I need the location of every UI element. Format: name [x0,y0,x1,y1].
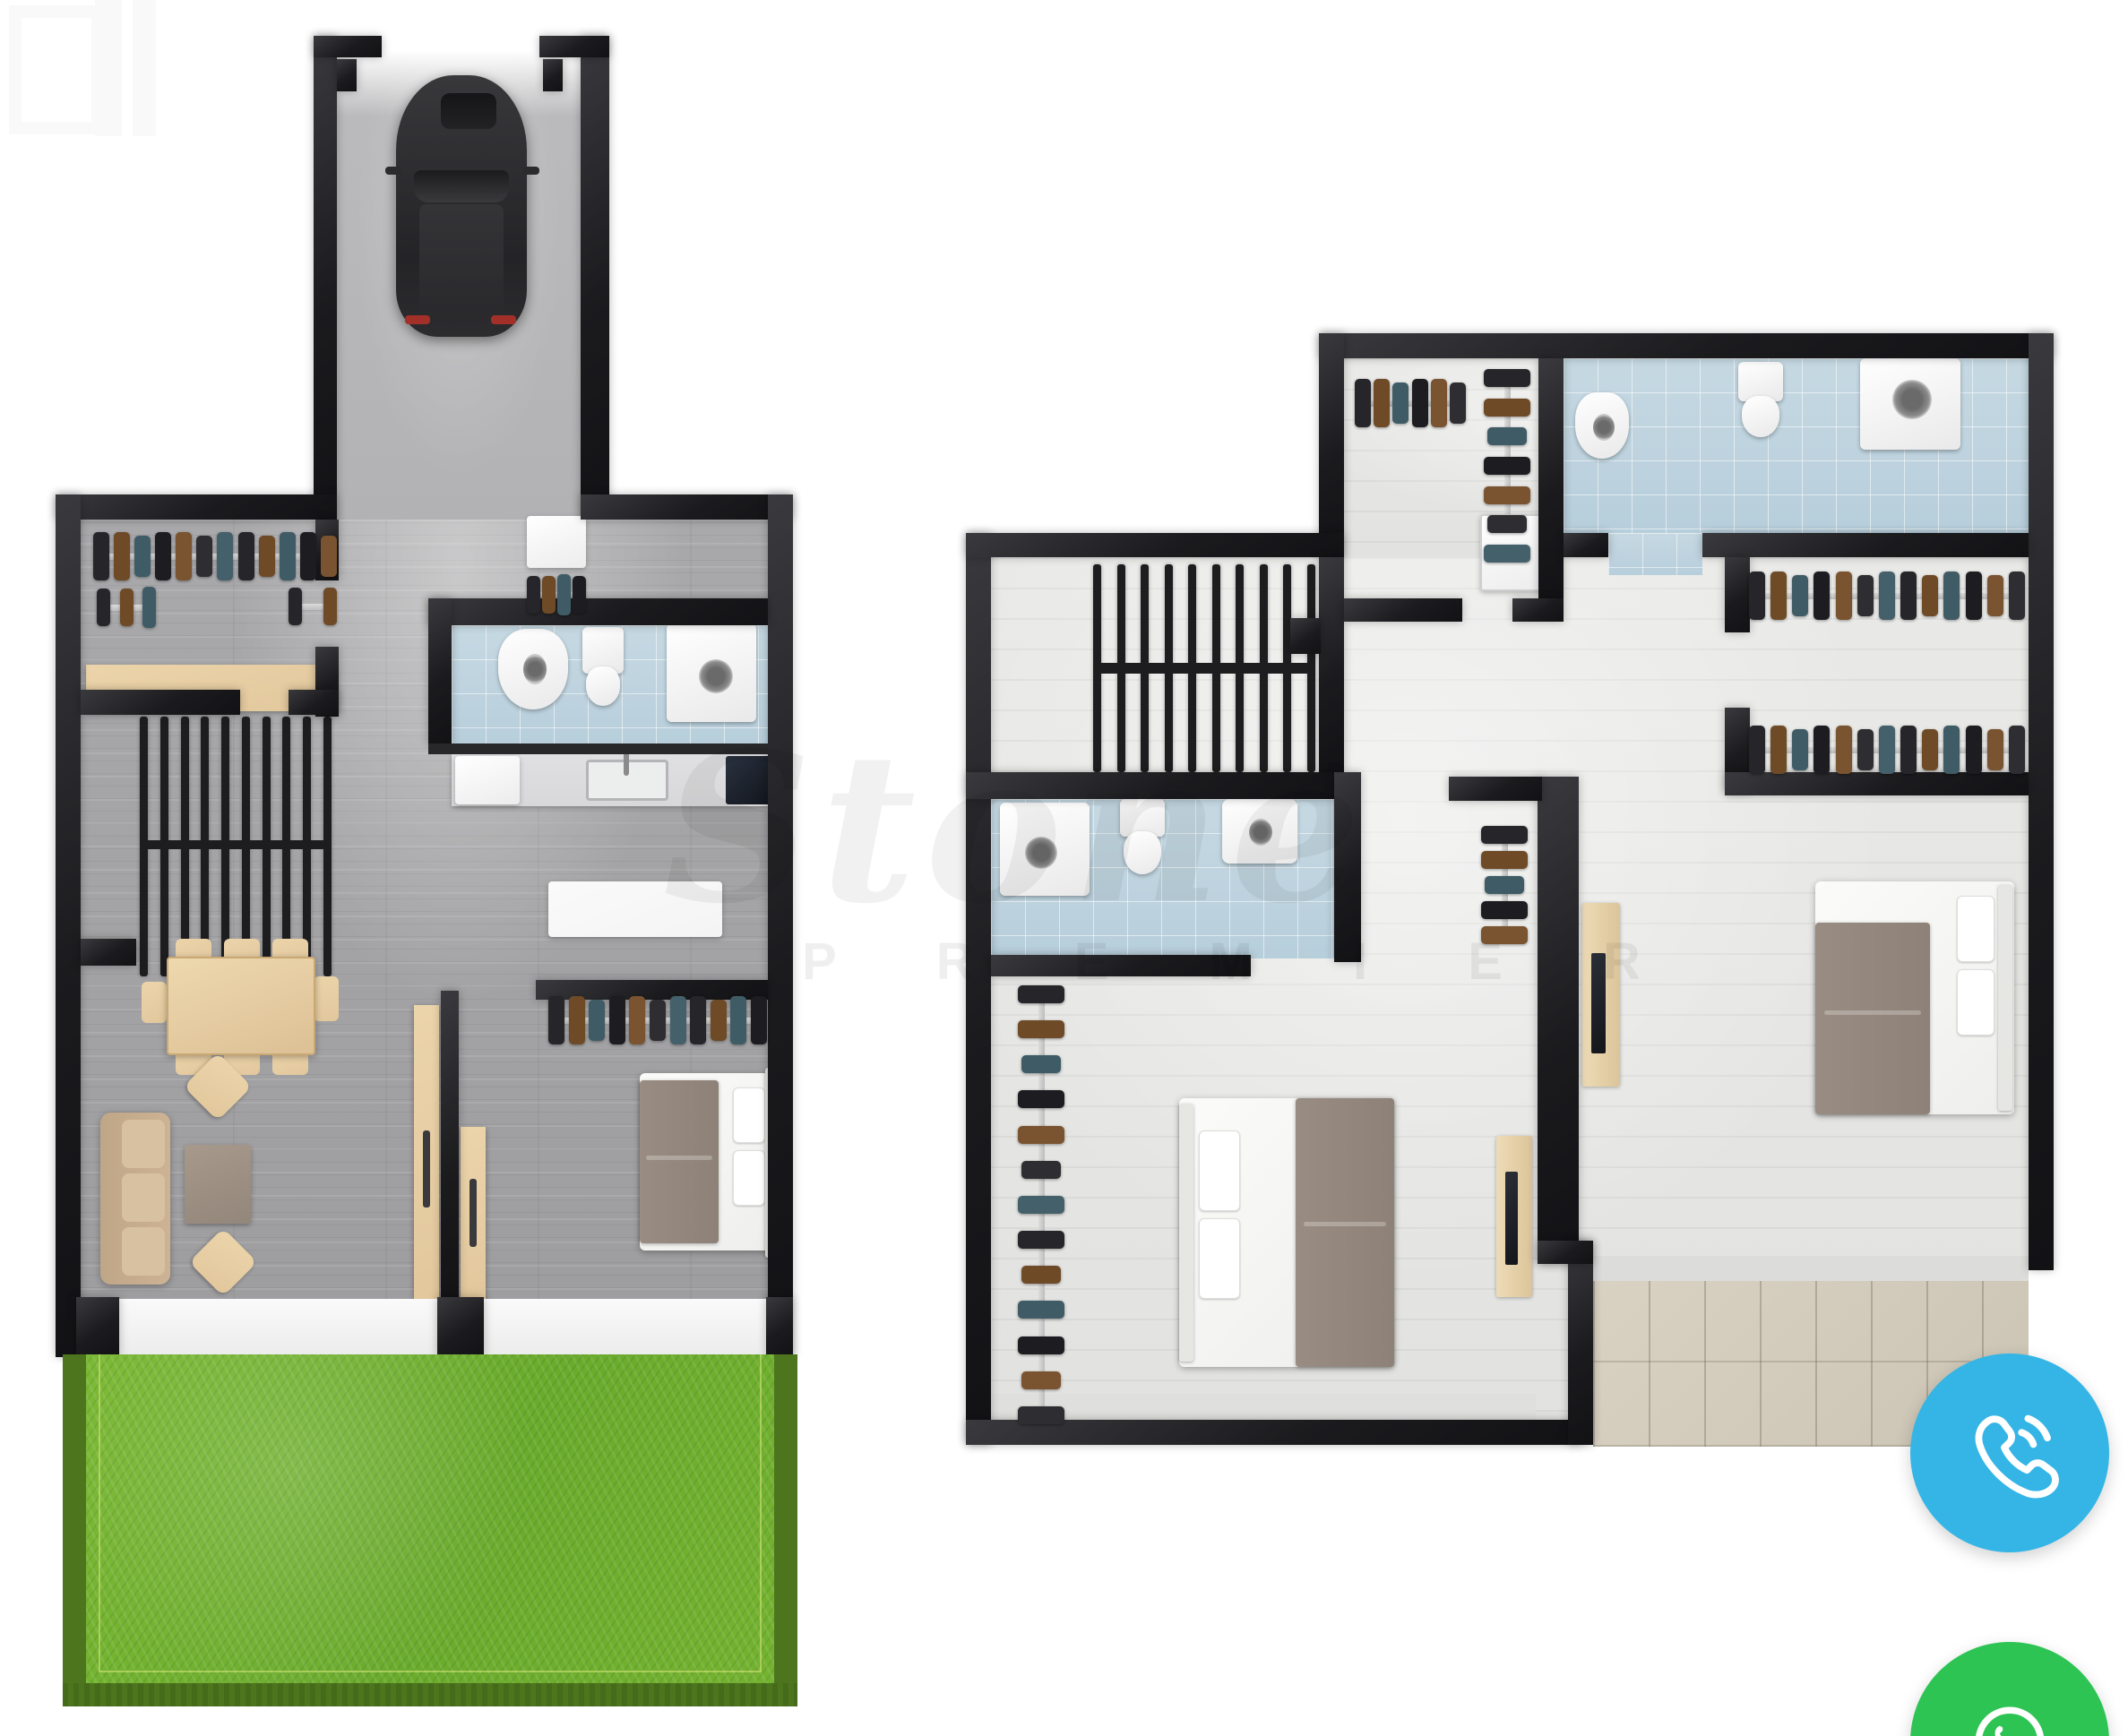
cloth-item [1018,1196,1064,1214]
cloth-item [238,532,254,580]
cloth-item [1481,826,1528,844]
cloth-item [670,996,686,1044]
cloth-item [1355,379,1371,427]
cloth-item [1966,726,1982,774]
garage-wall-left [314,36,337,522]
upper-wall-right [2029,333,2054,1270]
bathroom-top-door-spill [1608,533,1702,575]
floor-plan-page: Stone P R E M I E R [0,0,2128,1736]
cloth-item [1481,926,1528,944]
cloth-item [629,996,645,1044]
cloth-item [1487,515,1527,533]
cloth-item [1770,726,1787,774]
closet-rack-right [289,582,337,631]
cloth-item [1392,382,1409,424]
cloth-item [1021,1055,1061,1073]
garage-wall-top-right [539,36,609,57]
bedroom1-pillow [1199,1218,1240,1299]
cloth-item [1431,379,1447,427]
sliding-door-handle [423,1130,430,1207]
cloth-item [93,532,109,580]
cloth-item [1021,1266,1061,1284]
bed-pillow [733,1150,765,1206]
cloth-item [321,536,337,577]
window-post [76,1297,119,1357]
bed-blanket [640,1080,719,1243]
shower-drain [699,659,733,693]
bathroom-top-wall-bottom-a [1564,533,1608,557]
cloth-item [2009,726,2025,774]
car-taillight-right [491,315,516,324]
garage-notch-right [543,59,563,91]
cloth-item [527,576,540,614]
cloth-item [97,589,110,626]
upper-shower-drain [1892,380,1932,419]
phone-ring-icon [1956,1399,2063,1507]
cloth-item [176,532,192,580]
bedroom2-blanket [1815,923,1930,1114]
cloth-item [1018,1126,1064,1144]
garage-wall-right [581,36,609,522]
cloth-item [1018,1336,1064,1354]
dining-chair [314,976,339,1021]
cloth-item [573,576,586,614]
cloth-item [711,1000,727,1041]
bedroom-clothes-rack [548,994,767,1046]
cloth-item [1021,1371,1061,1389]
bedroom1-blanket [1296,1098,1394,1367]
cloth-item [1836,726,1852,774]
center-wall-vertical [1538,777,1579,1264]
whatsapp-phone-icon [1954,1686,2065,1736]
upper-closet-wall-bottom-b [1512,598,1564,622]
wardrobe-rack-lower [1749,722,2025,778]
cloth-item [1021,1161,1061,1179]
car-taillight-left [405,315,430,324]
cloth-item [289,588,302,625]
cloth-item [1966,572,1982,620]
bedroom-wall-vertical [441,991,459,1326]
cloth-item [114,532,130,580]
cloth-item [1412,379,1428,427]
washbasin-bowl [523,654,547,684]
closet-rack-long [93,529,337,584]
bedroom1-tv [1505,1172,1518,1265]
sofa [100,1113,170,1285]
cloth-item [1792,575,1808,616]
car-windshield [414,170,509,202]
cloth-item [1018,1406,1064,1424]
cloth-item [1487,427,1527,445]
logo-bar [95,0,122,136]
cloth-item [142,587,156,628]
dining-table [167,957,315,1055]
car-roof [419,204,504,310]
cloth-item [557,574,571,615]
cloth-item [155,532,171,580]
cloth-item [1900,572,1917,620]
cloth-item [300,532,316,580]
bedroom1-headboard [1179,1104,1193,1362]
cloth-item [650,1000,666,1041]
stairs-wall-stub [1290,618,1321,654]
sliding-door-handle [470,1179,477,1247]
cloth-item [134,536,151,577]
cloth-item [1814,572,1830,620]
window-post [766,1297,793,1357]
cloth-item [1857,575,1874,616]
window-post [437,1297,484,1357]
cloth-item [569,996,585,1044]
kitchen-faucet [624,752,629,776]
call-button[interactable] [1910,1354,2109,1552]
cloth-item [730,996,746,1044]
bathroom-top-wall-bottom-b [1702,533,2029,557]
wardrobe-rack-upper [1749,568,2025,623]
upper-washbasin-bowl [1593,414,1615,441]
cloth-item [1450,382,1466,424]
cloth-item [1018,1231,1064,1249]
wardrobe-wall-bottom [1725,772,2029,795]
cloth-item [323,588,337,625]
car-mirror-left [385,167,401,175]
upper-closet-wall-bottom-a [1344,598,1462,622]
bedroom2-wall-bottom-stub [1538,1241,1593,1264]
cloth-item [1943,572,1960,620]
cloth-item [1857,729,1874,770]
terrace-wall-left [1568,1241,1593,1445]
stairs-wall-stub [81,939,136,966]
cloth-item [548,996,564,1044]
cloth-item [1374,379,1390,427]
sofa-cushion [122,1227,165,1276]
sofa-cushion [122,1120,165,1168]
bathroom-wall-top [428,598,768,625]
cloth-item [196,536,212,577]
garage-notch-left [337,59,357,91]
bedroom2-headboard [1998,885,2012,1111]
bathroom-wall-left [428,598,452,745]
coffee-table [185,1145,251,1224]
cloth-item [1749,726,1765,774]
watermark-caps: P R E M I E R [802,932,1684,992]
cloth-item [217,532,233,580]
cloth-item [1484,486,1530,504]
logo-shape [9,5,104,134]
bedroom2-pillow [1957,896,1994,962]
cloth-item [1879,572,1895,620]
cloth-item [1900,726,1917,774]
closet-rack-left [97,584,156,631]
cloth-item [542,576,556,614]
bedroom1-pillow [1199,1130,1240,1211]
cloth-item [1485,876,1524,894]
wardrobe-divider-top [1725,557,1750,632]
cloth-item [1018,1090,1064,1108]
bed-pillow [733,1087,765,1143]
car-mirror-right [523,167,539,175]
cloth-item [1814,726,1830,774]
cloth-item [1987,575,2003,616]
cloth-item [1922,575,1938,616]
sofa-cushion [122,1173,165,1222]
cloth-item [1836,572,1852,620]
cloth-item [280,532,296,580]
cloth-item [1484,399,1530,417]
upper-topblock-wall-left [1319,333,1344,557]
upper-closet-rack-a [1355,374,1466,432]
watermark-script: Stone [663,708,1370,950]
garden-lawn [63,1354,797,1706]
hallway-coat-rack [1473,826,1536,944]
garage-wall-top-left [314,36,382,57]
center-wall-stub [1449,777,1542,801]
house-wall-left [56,494,81,1357]
cloth-item [120,589,134,626]
cloth-item [609,996,625,1044]
logo-bar [133,0,156,136]
entry-cabinet [527,516,586,568]
fridge [455,756,520,804]
terrace-step [1593,1256,2029,1281]
rear-window-strip [81,1299,768,1357]
cloth-item [1018,1020,1064,1038]
cloth-item [1484,369,1530,387]
dining-chair [142,982,167,1023]
cloth-item [1770,572,1787,620]
cloth-item [1749,572,1765,620]
cloth-item [1484,457,1530,475]
cloth-item [259,536,275,577]
house-wall-top-right [581,494,793,520]
whatsapp-button[interactable] [1910,1642,2109,1736]
upper-wall-top [1319,333,2054,358]
cloth-item [1987,729,2003,770]
upper-staircase-mid-rail [1093,663,1315,674]
staircase-mid-rail [140,840,332,849]
closet-wall-bottom-a [81,690,240,715]
upper-closet-wall-right [1538,358,1564,598]
cloth-item [1481,901,1528,919]
cloth-item [2009,572,2025,620]
cloth-item [1484,545,1530,563]
bedroom2-pillow [1957,969,1994,1036]
corner-watermark-logo [0,0,179,143]
cloth-item [1879,726,1895,774]
closet-wall-bottom-b [289,690,339,715]
cloth-item [1943,726,1960,774]
upper-wall-left-top [966,533,1344,557]
car-sunroof [441,93,496,129]
toilet-bowl [586,666,620,706]
cloth-item [690,996,706,1044]
cloth-item [1922,729,1938,770]
house-wall-top-left [56,494,337,520]
bedroom1-clothes-rack [1004,985,1079,1424]
cloth-item [751,996,767,1044]
upper-toilet-bowl [1742,396,1779,437]
cloth-item [1018,985,1064,1003]
cloth-item [589,1000,605,1041]
cloth-item [1481,851,1528,869]
cloth-item [1018,1301,1064,1319]
cloth-item [1792,729,1808,770]
